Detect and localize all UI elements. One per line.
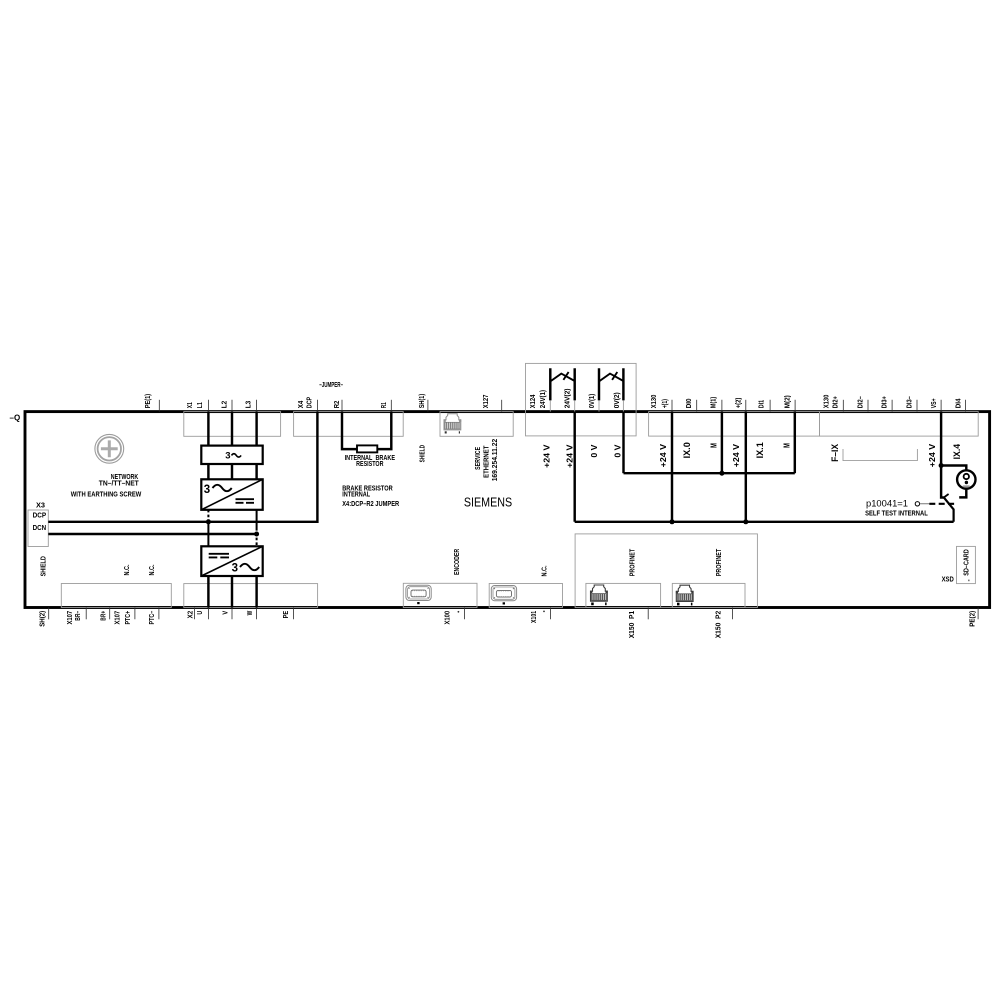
svg-text:X130: X130: [821, 395, 830, 409]
svg-text:M: M: [708, 443, 718, 448]
svg-text:M(1): M(1): [709, 396, 718, 408]
svg-text:DCN: DCN: [33, 523, 47, 532]
svg-text:PROFINET: PROFINET: [627, 548, 636, 576]
svg-text:PE(2): PE(2): [967, 610, 976, 626]
svg-text:N.C.: N.C.: [122, 565, 131, 576]
svg-text:DI1: DI1: [757, 400, 766, 408]
svg-text:SD–CARD: SD–CARD: [962, 549, 971, 576]
svg-text:0 V: 0 V: [589, 444, 599, 457]
svg-text:X130: X130: [649, 395, 658, 409]
svg-text:DI2–: DI2–: [855, 396, 864, 408]
svg-text:L3: L3: [244, 401, 253, 409]
svg-text:+24 V: +24 V: [927, 443, 937, 467]
svg-text:IX.0: IX.0: [682, 442, 693, 458]
svg-text:24V(1): 24V(1): [538, 390, 547, 409]
svg-text:169.254.11.22: 169.254.11.22: [490, 439, 499, 482]
svg-text:24V(2): 24V(2): [562, 388, 571, 408]
svg-text:IX.1: IX.1: [755, 442, 766, 459]
svg-text:DI3+: DI3+: [880, 396, 889, 409]
svg-text:DCP: DCP: [33, 511, 47, 520]
svg-text:0 V: 0 V: [613, 444, 623, 457]
svg-text:ENCODER: ENCODER: [452, 548, 461, 575]
svg-text:PE(1): PE(1): [143, 393, 152, 408]
svg-text:U: U: [195, 611, 204, 615]
svg-text:0V(1): 0V(1): [587, 393, 596, 408]
svg-text:DI4: DI4: [953, 398, 962, 409]
svg-text:X1: X1: [185, 402, 194, 408]
svg-text:0V(2): 0V(2): [612, 392, 621, 408]
svg-text:–JUMPER–: –JUMPER–: [319, 380, 343, 389]
svg-text:+24 V: +24 V: [564, 444, 574, 468]
svg-text:X100: X100: [443, 611, 452, 625]
svg-text:PTC+: PTC+: [123, 610, 132, 624]
svg-text:N.C.: N.C.: [540, 566, 549, 577]
svg-text:VS+: VS+: [929, 398, 938, 408]
svg-text:DCP: DCP: [305, 397, 314, 408]
svg-text:X107: X107: [112, 611, 121, 625]
svg-text:N.C.: N.C.: [147, 565, 156, 576]
svg-text:XSD: XSD: [942, 574, 955, 583]
svg-text:3: 3: [225, 451, 230, 462]
svg-text:X124: X124: [528, 394, 537, 408]
svg-text:3: 3: [204, 484, 210, 496]
svg-text:L1: L1: [195, 402, 204, 408]
svg-text:+(1): +(1): [660, 399, 669, 409]
svg-text:DI3–: DI3–: [904, 396, 913, 408]
svg-text:PROFINET: PROFINET: [714, 548, 723, 576]
svg-text:+24 V: +24 V: [658, 444, 668, 468]
svg-text:INTERNAL: INTERNAL: [342, 489, 370, 498]
svg-text:SHIELD: SHIELD: [417, 444, 426, 462]
svg-text:W: W: [245, 611, 254, 616]
svg-text:M: M: [782, 443, 792, 448]
svg-text:WITH EARTHING SCREW: WITH EARTHING SCREW: [71, 489, 142, 498]
svg-text:X4:DCP–R2 JUMPER: X4:DCP–R2 JUMPER: [342, 499, 400, 508]
svg-text:TN–/TT–NET: TN–/TT–NET: [99, 478, 139, 487]
svg-text:BR–: BR–: [73, 611, 82, 621]
svg-text:+24 V: +24 V: [542, 444, 552, 468]
svg-text:p10041=1: p10041=1: [866, 499, 908, 509]
svg-text:PE: PE: [281, 611, 290, 619]
svg-text:–Q: –Q: [10, 413, 21, 422]
svg-text:X2: X2: [185, 611, 194, 619]
svg-text:PTC–: PTC–: [147, 611, 156, 625]
svg-text:F–IX: F–IX: [830, 443, 841, 462]
svg-text:X150 P2: X150 P2: [713, 611, 722, 639]
svg-text:3: 3: [232, 563, 238, 575]
svg-text:L2: L2: [219, 401, 228, 409]
svg-text:SH(2): SH(2): [37, 610, 46, 626]
svg-text:V: V: [221, 611, 230, 615]
svg-text:X150 P1: X150 P1: [627, 611, 636, 639]
svg-text:X127: X127: [481, 395, 490, 409]
svg-text:SH(1): SH(1): [417, 393, 426, 408]
svg-text:X101: X101: [529, 611, 538, 623]
svg-text:X3: X3: [36, 501, 45, 510]
svg-text:SELF TEST INTERNAL: SELF TEST INTERNAL: [865, 508, 928, 517]
svg-text:+24 V: +24 V: [731, 444, 741, 468]
svg-text:DI2+: DI2+: [830, 396, 839, 409]
svg-text:R2: R2: [332, 401, 341, 409]
svg-text:RESISTOR: RESISTOR: [356, 459, 384, 468]
svg-text:BR+: BR+: [99, 610, 108, 620]
svg-text:DI0: DI0: [684, 398, 693, 408]
svg-text:M(2): M(2): [782, 395, 791, 408]
svg-text:IX.4: IX.4: [952, 443, 963, 459]
svg-text:R1: R1: [379, 402, 388, 408]
svg-text:+(2): +(2): [733, 397, 742, 408]
svg-text:SHIELD: SHIELD: [38, 556, 47, 577]
svg-text:SIEMENS: SIEMENS: [464, 495, 512, 509]
